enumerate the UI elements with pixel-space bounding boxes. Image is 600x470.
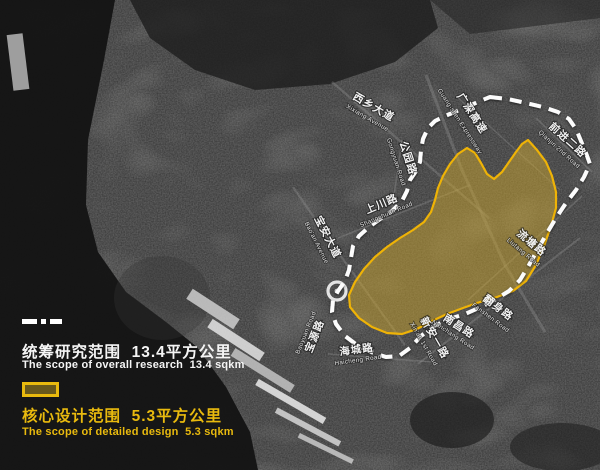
research-line-symbol [22, 319, 62, 324]
dash-dot [41, 319, 46, 324]
park-area [410, 392, 494, 448]
core-scope-subtitle: The scope of detailed design 5.3 sqkm [22, 426, 234, 438]
dash-segment [22, 319, 37, 324]
dash-segment [50, 319, 62, 324]
research-scope-subtitle: The scope of overall research 13.4 sqkm [22, 359, 245, 371]
core-scope-title: 核心设计范围 5.3平方公里 [22, 404, 222, 426]
satellite-map: 西乡大道 Xixiang Avenue 广深高速 Guang-shen Expr… [0, 0, 600, 470]
core-area-symbol [22, 382, 59, 397]
